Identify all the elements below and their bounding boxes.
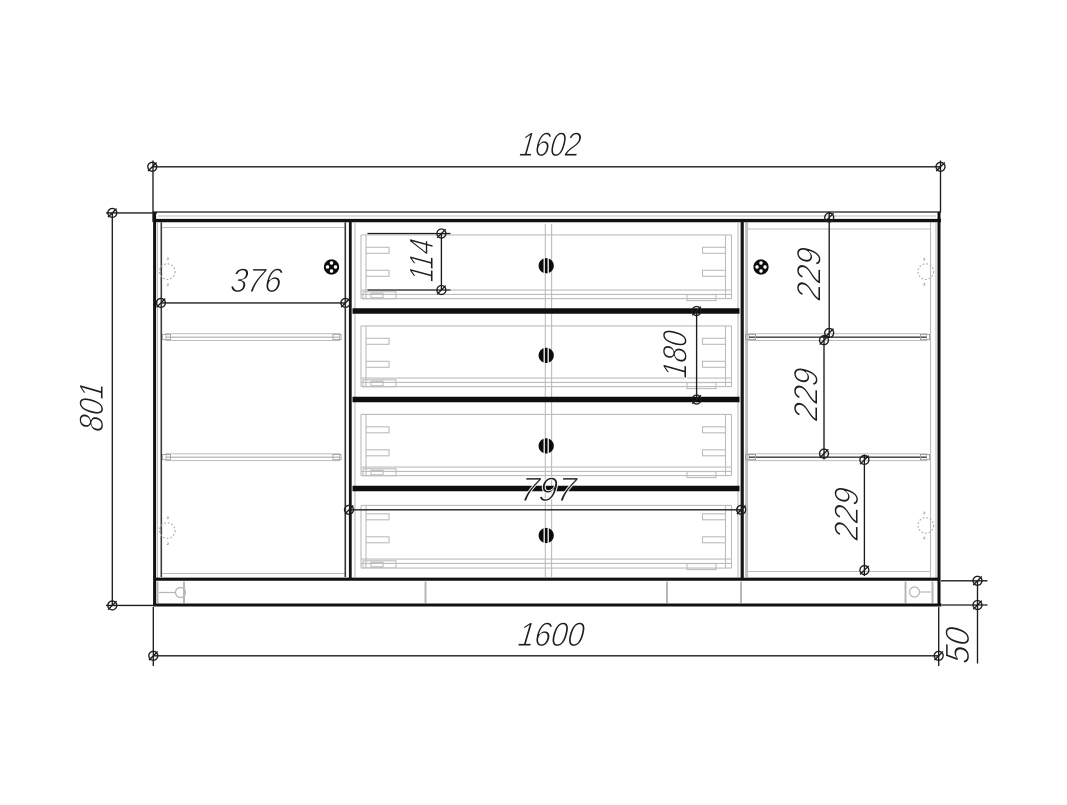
svg-text:180: 180: [657, 328, 695, 380]
svg-text:1602: 1602: [518, 126, 584, 164]
svg-text:797: 797: [519, 471, 581, 509]
svg-text:229: 229: [791, 245, 829, 303]
svg-text:801: 801: [73, 380, 111, 434]
svg-text:114: 114: [403, 237, 441, 284]
svg-text:50: 50: [939, 625, 977, 666]
svg-text:229: 229: [828, 485, 866, 543]
svg-text:229: 229: [788, 366, 826, 424]
svg-text:1600: 1600: [516, 616, 587, 654]
svg-text:376: 376: [229, 262, 285, 300]
